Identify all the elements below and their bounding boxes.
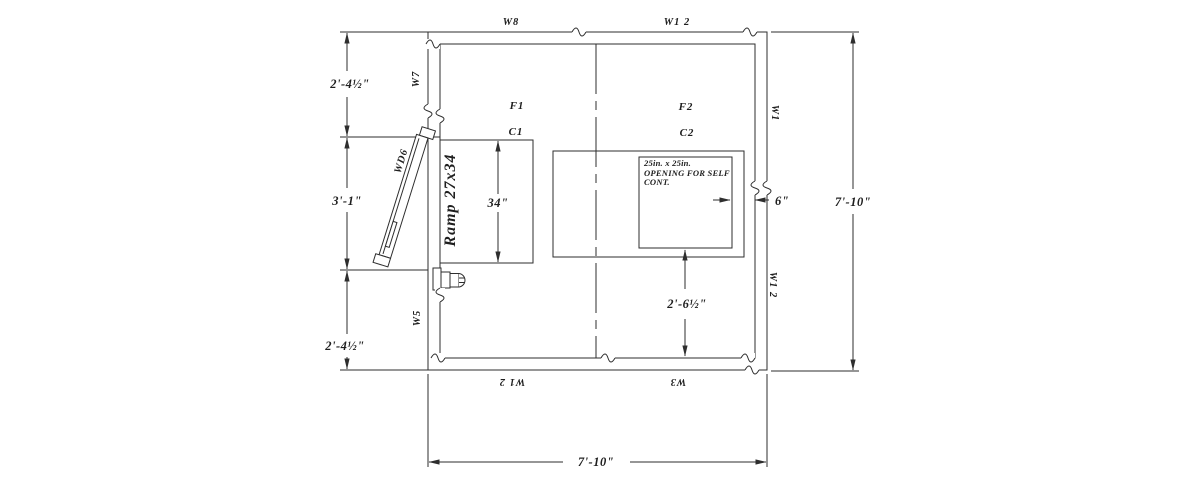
ramp-door-leaf bbox=[373, 125, 435, 269]
wall-label-w7: W7 bbox=[411, 71, 422, 88]
dim-right-overall: 7'-10" bbox=[835, 195, 871, 209]
wall-label-w5: W5 bbox=[412, 310, 423, 327]
wall-label-w12-top: W1 2 bbox=[664, 17, 690, 28]
room-label-c2: C2 bbox=[680, 127, 695, 139]
dim-opening-offset: 6" bbox=[775, 194, 789, 208]
floor-plan-canvas: W8 W1 2 W7 WD6 W5 W1 W1 2 W1 2 W3 F1 C1 … bbox=[0, 0, 1200, 480]
dim-left-middle: 3'-1" bbox=[331, 194, 362, 208]
opening-note-line1: 25in. x 25in. bbox=[643, 158, 691, 168]
wall-break-symbols bbox=[423, 27, 772, 375]
wall-label-w8: W8 bbox=[503, 17, 520, 28]
wall-label-w12-bottom: W1 2 bbox=[499, 376, 525, 387]
wall-outline bbox=[428, 32, 767, 370]
extension-lines bbox=[340, 32, 859, 467]
dim-left-top: 2'-4½" bbox=[329, 77, 369, 91]
room-label-f2: F2 bbox=[678, 101, 694, 113]
dim-c1-height: 34" bbox=[487, 196, 509, 210]
wall-label-w3: W3 bbox=[670, 376, 687, 387]
room-label-c1: C1 bbox=[509, 126, 524, 138]
dim-bottom-overall: 7'-10" bbox=[578, 455, 614, 469]
ramp-label: Ramp 27x34 bbox=[442, 153, 459, 247]
door-latch bbox=[433, 268, 465, 290]
room-label-f1: F1 bbox=[509, 100, 525, 112]
dimension-lines bbox=[347, 33, 853, 462]
dim-opening-to-wall: 2'-6½" bbox=[666, 297, 706, 311]
floor-plan-drawing: W8 W1 2 W7 WD6 W5 W1 W1 2 W1 2 W3 F1 C1 … bbox=[0, 0, 1200, 480]
wall-label-w12-right: W1 2 bbox=[767, 272, 778, 298]
dim-left-bottom: 2'-4½" bbox=[324, 339, 364, 353]
opening-note: 25in. x 25in. OPENING FOR SELF CONT. bbox=[643, 158, 730, 187]
wall-label-w1: W1 bbox=[769, 105, 780, 122]
opening-note-line3: CONT. bbox=[644, 177, 670, 187]
